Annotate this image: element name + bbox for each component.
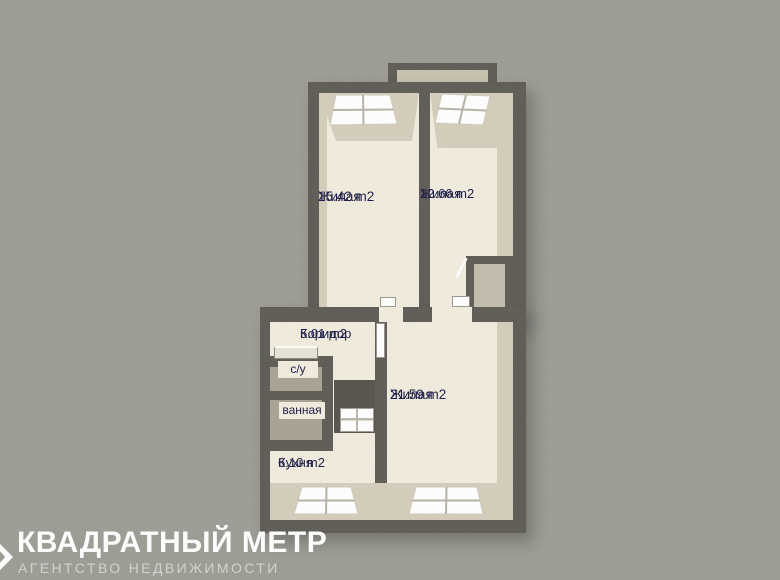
wall-below-bath xyxy=(270,440,333,451)
room-area: 12.66 m2 xyxy=(420,186,474,201)
floor-plan-image: Жилая 15.42 m2 Жилая 12.66 m2 Коридор 5.… xyxy=(0,0,780,580)
window-living3 xyxy=(407,485,485,517)
agency-logo-icon xyxy=(0,544,13,570)
door-living1-corridor xyxy=(379,307,403,322)
room-living3-floor xyxy=(387,322,497,483)
door-living2-living3 xyxy=(432,307,472,322)
room-living3-wall-face-right xyxy=(497,322,513,483)
window-kitchen xyxy=(292,485,360,517)
door-leaf-living1 xyxy=(380,297,396,307)
niche-floor xyxy=(474,264,505,307)
room-area: 5.01 m2 xyxy=(300,326,347,342)
room-area: 6.10 m2 xyxy=(278,455,325,471)
wall-between-wc-bath xyxy=(270,391,322,400)
door-corridor-living3 xyxy=(376,323,385,358)
label-wc: с/у xyxy=(278,361,318,378)
room-area: 21.59 m2 xyxy=(390,387,446,402)
sink-fixture xyxy=(274,346,318,359)
door-leaf-living2 xyxy=(452,296,470,307)
window-living1 xyxy=(326,92,400,128)
watermark-subtitle: АГЕНТСТВО НЕДВИЖИМОСТИ xyxy=(18,560,280,576)
appliance-fixture xyxy=(340,408,374,432)
watermark-title: КВАДРАТНЫЙ МЕТР xyxy=(17,526,327,560)
room-area: 15.42 m2 xyxy=(318,187,374,207)
label-bathroom: ванная xyxy=(279,402,325,419)
window-living2 xyxy=(432,92,494,128)
